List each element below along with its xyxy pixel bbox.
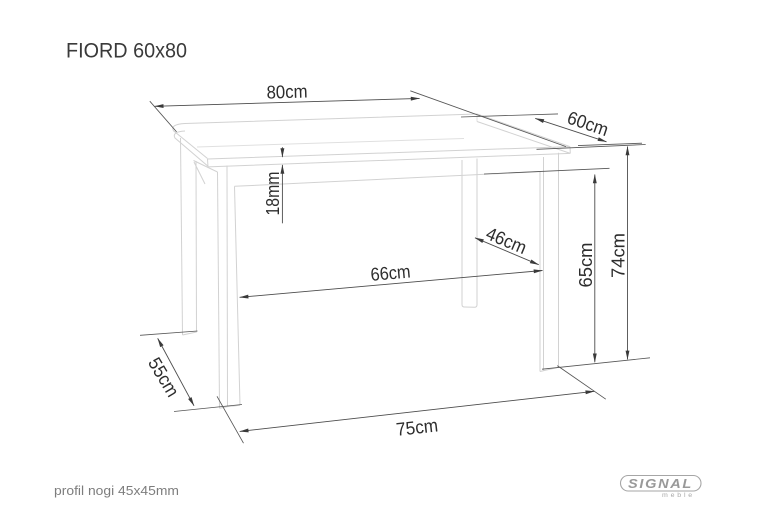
svg-text:66cm: 66cm [370,260,412,284]
svg-text:18mm: 18mm [262,172,283,216]
svg-text:meble: meble [662,492,695,499]
svg-text:75cm: 75cm [395,414,439,440]
svg-text:FIORD 60x80: FIORD 60x80 [66,40,187,63]
svg-text:profil nogi 45x45mm: profil nogi 45x45mm [54,483,179,498]
svg-text:65cm: 65cm [575,243,596,288]
svg-text:46cm: 46cm [483,223,530,259]
svg-text:60cm: 60cm [565,107,612,140]
svg-text:74cm: 74cm [607,233,628,278]
svg-text:55cm: 55cm [144,354,184,401]
svg-text:SIGNAL: SIGNAL [628,476,693,491]
svg-text:80cm: 80cm [266,80,308,102]
